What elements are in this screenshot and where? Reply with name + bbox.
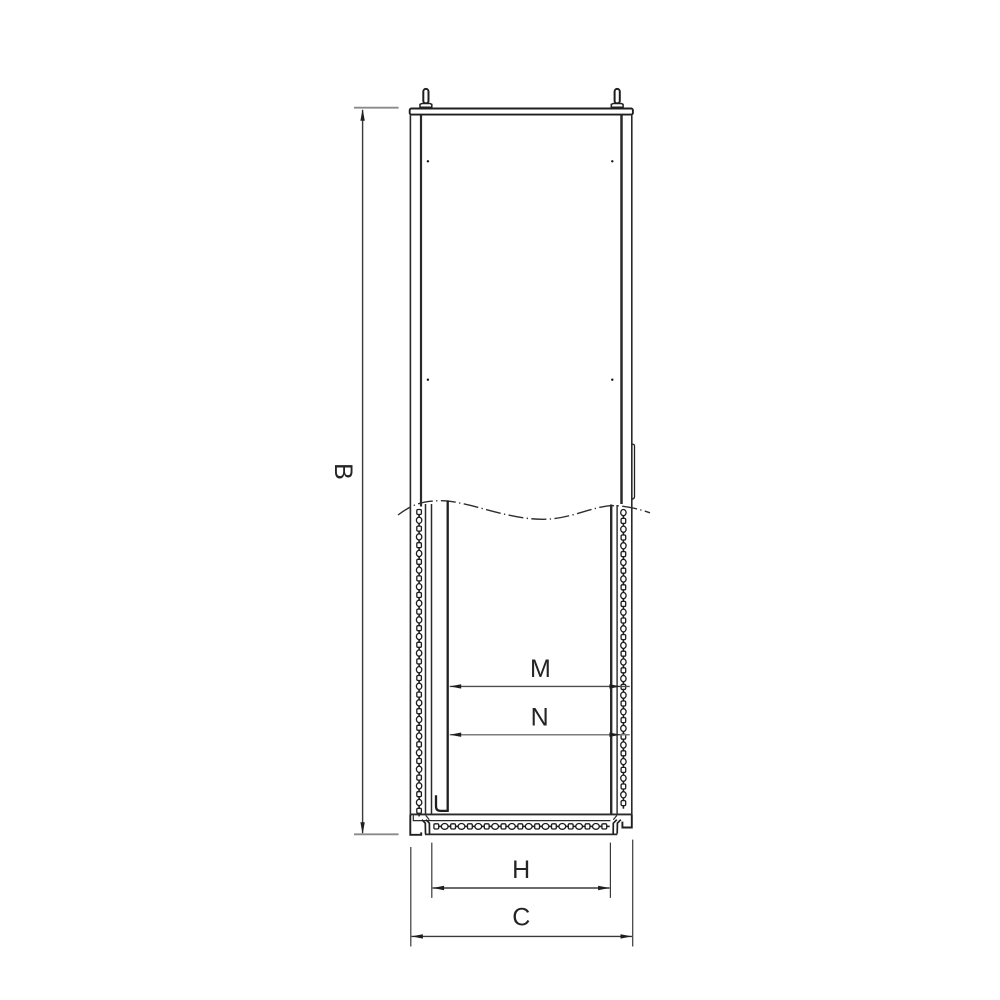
svg-text:B: B <box>329 463 357 480</box>
svg-text:H: H <box>512 856 530 884</box>
svg-text:M: M <box>530 655 551 683</box>
svg-text:N: N <box>531 704 549 732</box>
svg-text:C: C <box>512 904 530 932</box>
